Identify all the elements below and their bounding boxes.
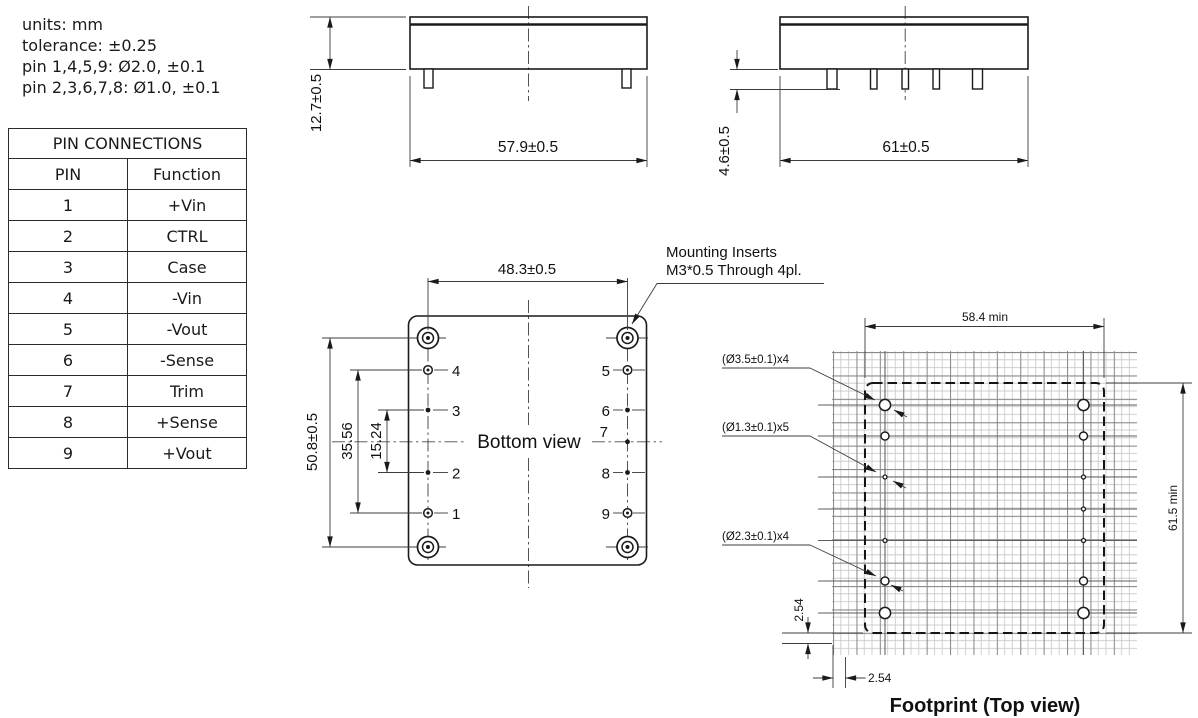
- side-view-pin: [871, 69, 878, 89]
- footprint-grid: [832, 351, 1137, 655]
- front-view: 12.7±0.5 57.9±0.5: [308, 6, 647, 167]
- front-view-height-dim: 12.7±0.5: [308, 74, 325, 132]
- pin-label: 5: [602, 363, 610, 380]
- pin-hole-label: (Ø2.3±0.1)x4: [722, 531, 790, 543]
- footprint-view: (Ø3.5±0.1)x4 (Ø1.3±0.1)x5 (Ø2.3±0.1)x4: [722, 310, 1192, 717]
- mounting-insert: [606, 537, 648, 558]
- pin-label: 8: [602, 466, 610, 483]
- pin-9: 9: [602, 506, 645, 523]
- pin-label: 4: [452, 363, 460, 380]
- mounting-insert: [322, 537, 446, 558]
- mounting-note-line1: Mounting Inserts: [666, 244, 777, 261]
- front-view-width-dim: 57.9±0.5: [498, 139, 558, 156]
- side-view-pin: [933, 69, 940, 89]
- bottom-view-label: Bottom view: [477, 432, 581, 453]
- footprint-width-dim: 58.4 min: [962, 310, 1008, 324]
- bottom-view-height-dim: 50.8±0.5: [304, 413, 321, 471]
- pin-label: 2: [452, 466, 460, 483]
- side-view-pin: [902, 69, 909, 89]
- small-hole-label: (Ø1.3±0.1)x5: [722, 422, 789, 434]
- side-view-pin-length-dim: 4.6±0.5: [716, 126, 733, 176]
- side-view-width-dim: 61±0.5: [882, 139, 929, 156]
- pin-label: 3: [452, 403, 460, 420]
- pin-5: 5: [602, 363, 645, 380]
- bottom-view-width-dim: 48.3±0.5: [498, 261, 556, 278]
- side-view-pin: [973, 69, 983, 89]
- front-view-pin-right: [622, 69, 631, 88]
- front-view-pin-left: [424, 69, 433, 88]
- engineering-drawing-canvas: 12.7±0.5 57.9±0.5 4.6±0.5: [0, 0, 1198, 718]
- footprint-height-dim: 61.5 min: [1166, 485, 1180, 531]
- pin-8: 8: [602, 466, 645, 483]
- mounting-note-leader: [632, 284, 824, 325]
- mounting-insert: [606, 328, 648, 349]
- side-view-pin: [827, 69, 837, 89]
- side-view: 4.6±0.5 61±0.5: [716, 6, 1028, 176]
- pin-label: 6: [602, 403, 610, 420]
- pin-label: 1: [452, 506, 460, 523]
- bottom-view-inner-pin-span-dim: 15.24: [368, 422, 385, 460]
- mounting-note-line2: M3*0.5 Through 4pl.: [666, 262, 802, 279]
- pin-label: 7: [600, 424, 608, 441]
- mounting-insert: [322, 328, 446, 349]
- pin-1: 1: [350, 506, 460, 523]
- mounting-hole-label: (Ø3.5±0.1)x4: [722, 354, 790, 366]
- pin-4: 4: [350, 363, 460, 380]
- pin-3: 3: [378, 403, 460, 420]
- bottom-view-outer-pin-span-dim: 35.56: [339, 422, 356, 460]
- pin-6: 6: [602, 403, 645, 420]
- mechanical-drawing-page: units: mm tolerance: ±0.25 pin 1,4,5,9: …: [0, 0, 1198, 718]
- pin-7: 7: [600, 424, 630, 444]
- pin-2: 2: [378, 466, 460, 483]
- footprint-title: Footprint (Top view): [890, 695, 1081, 717]
- footprint-pitch-horizontal-dim: 2.54: [868, 671, 892, 685]
- pin-label: 9: [602, 506, 610, 523]
- footprint-pitch-vertical-dim: 2.54: [792, 598, 806, 622]
